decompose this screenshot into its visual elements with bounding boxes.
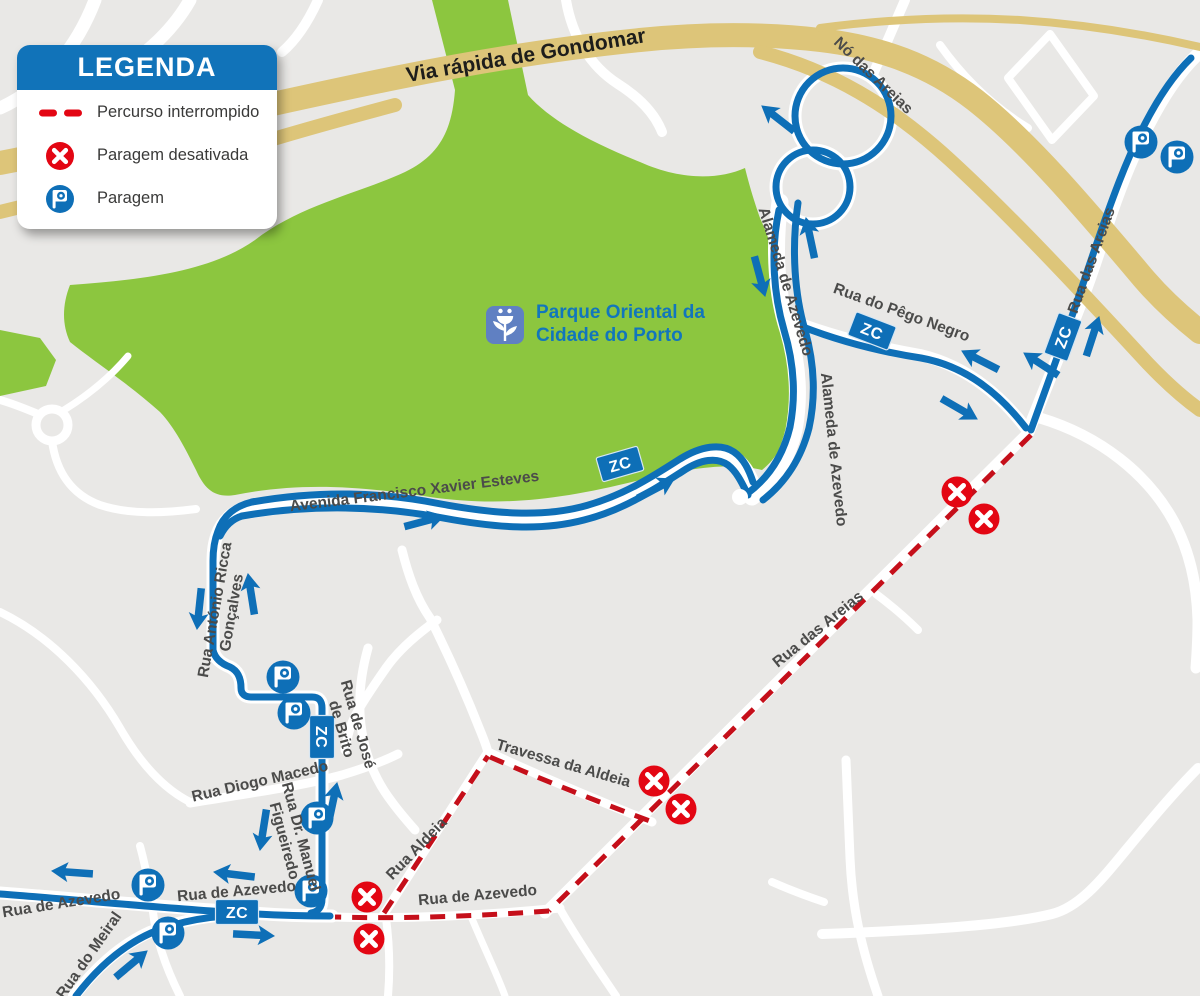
park-polygon-small xyxy=(0,330,56,396)
roundabout-dot xyxy=(732,489,748,505)
road xyxy=(402,550,488,753)
legend-item-label: Paragem desativada xyxy=(97,146,248,165)
road xyxy=(822,768,1198,934)
bus-stop-icon xyxy=(37,183,83,215)
bus-stop-icon xyxy=(1161,141,1194,174)
street-label-alameda-de-azevedo-lower: Alameda de Azevedo xyxy=(817,372,850,527)
direction-arrow-icon xyxy=(936,390,982,428)
map-canvas: Parque Oriental da Cidade do Porto ZCZCZ… xyxy=(0,0,1200,996)
road xyxy=(560,909,616,996)
zc-badge-label: ZC xyxy=(226,905,248,922)
plant-dot xyxy=(507,309,511,313)
legend-item-label: Percurso interrompido xyxy=(97,103,259,122)
direction-arrow-icon xyxy=(50,861,93,884)
disabled-stop-icon xyxy=(352,882,383,913)
road xyxy=(386,918,389,996)
legend-item-label: Paragem xyxy=(97,189,164,208)
road xyxy=(64,356,128,410)
direction-arrow-icon xyxy=(233,924,276,946)
street-label-rua-aldeia: Rua Aldeia xyxy=(383,814,451,883)
legend-title: LEGENDA xyxy=(17,45,277,90)
disabled-stop-icon xyxy=(354,924,385,955)
street-label-rua-de-azevedo-center: Rua de Azevedo xyxy=(418,882,538,909)
disabled-stop-icon xyxy=(942,477,973,508)
road xyxy=(282,0,318,52)
disabled-stops-layer xyxy=(352,477,1000,955)
zc-badge: ZC xyxy=(216,900,259,925)
bus-stop-icon xyxy=(278,697,311,730)
disabled-stop-icon xyxy=(37,140,83,172)
park-name-line1: Parque Oriental da xyxy=(536,302,705,323)
road xyxy=(566,0,662,132)
dashed-line-icon xyxy=(37,107,83,119)
bus-stop-icon xyxy=(267,661,300,694)
legend-item-disabled-stop: Paragem desativada xyxy=(17,135,277,176)
bus-stop-icon xyxy=(152,917,185,950)
disabled-stop-icon xyxy=(969,504,1000,535)
road xyxy=(876,594,918,630)
bus-stop-icon xyxy=(1125,126,1158,159)
disabled-stop-icon xyxy=(639,766,670,797)
legend-item-interrupted: Percurso interrompido xyxy=(17,92,277,133)
plant-dot xyxy=(498,309,502,313)
road xyxy=(846,760,878,996)
legend-item-stop: Paragem xyxy=(17,178,277,219)
zc-badge: ZC xyxy=(1044,313,1082,362)
street-label-rua-das-areias-red: Rua das Areias xyxy=(770,588,867,671)
disabled-stop-icon xyxy=(666,794,697,825)
road xyxy=(772,882,824,902)
road xyxy=(0,400,38,414)
road xyxy=(470,914,505,996)
road xyxy=(0,612,190,802)
park-name-line2: Cidade do Porto xyxy=(536,325,683,346)
road xyxy=(1040,418,1198,668)
legend-panel: LEGENDA Percurso interrompido Paragem de… xyxy=(17,45,277,229)
zc-badge-label: ZC xyxy=(312,726,329,748)
road xyxy=(52,441,196,512)
bus-stop-icon xyxy=(132,869,165,902)
park-icon xyxy=(486,306,524,344)
